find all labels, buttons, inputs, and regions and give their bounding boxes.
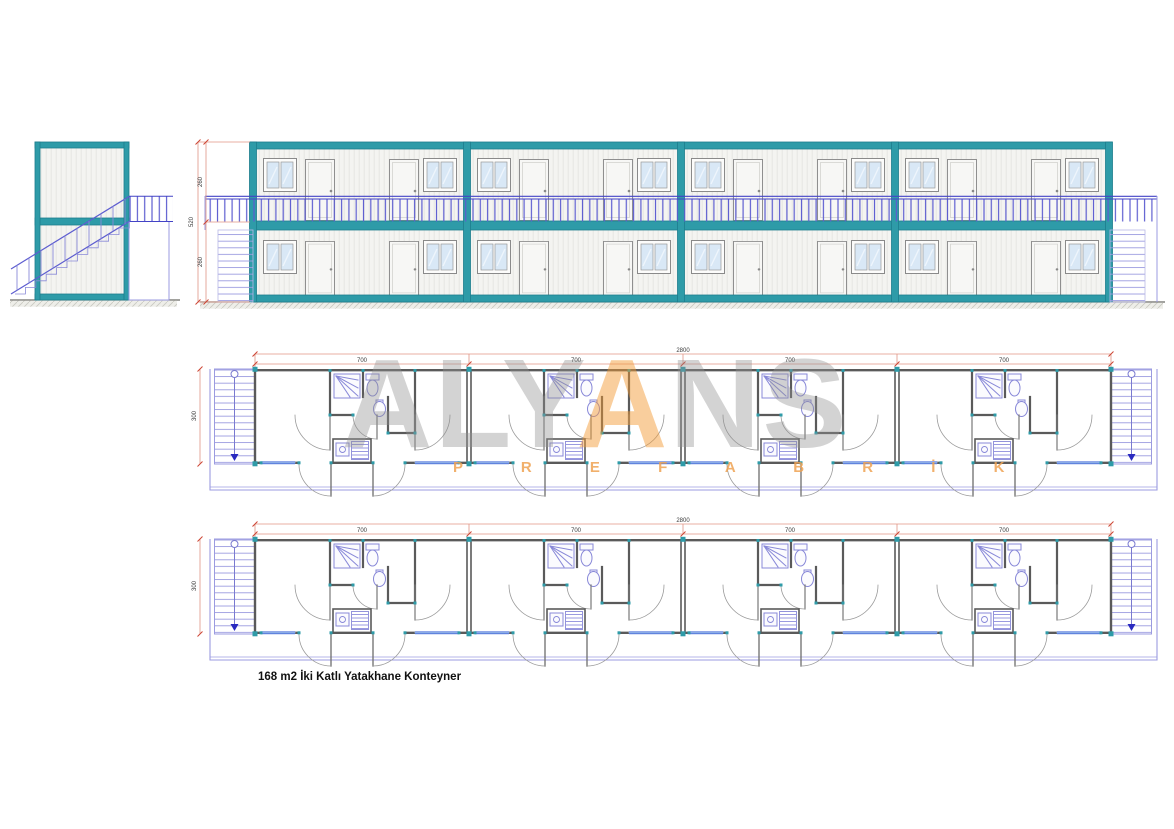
drawing-sheet: { "caption": "168 m2 İki Katlı Yatakhane… [0, 0, 1174, 829]
floor-plan-upper [180, 345, 1174, 510]
dim-elev-upper: 260 [198, 176, 204, 187]
stair-support [129, 222, 169, 301]
side-container-stack [35, 142, 129, 300]
balcony-railing [205, 196, 1157, 221]
floor-plan-lower [180, 515, 1174, 680]
floor-plan-upper-content [192, 348, 1157, 496]
side-elevation-view [5, 128, 190, 313]
platform-railing [129, 196, 173, 222]
ground-hatch [200, 303, 1163, 309]
front-elevation-view: 520 260 260 [180, 128, 1170, 313]
drawing-caption: 168 m2 İki Katlı Yatakhane Konteyner [258, 671, 461, 683]
ground-hatch [10, 301, 177, 307]
floor-plan-lower-content [192, 518, 1157, 666]
dim-elev-total: 520 [189, 216, 195, 227]
dim-elev-lower: 260 [198, 256, 204, 267]
